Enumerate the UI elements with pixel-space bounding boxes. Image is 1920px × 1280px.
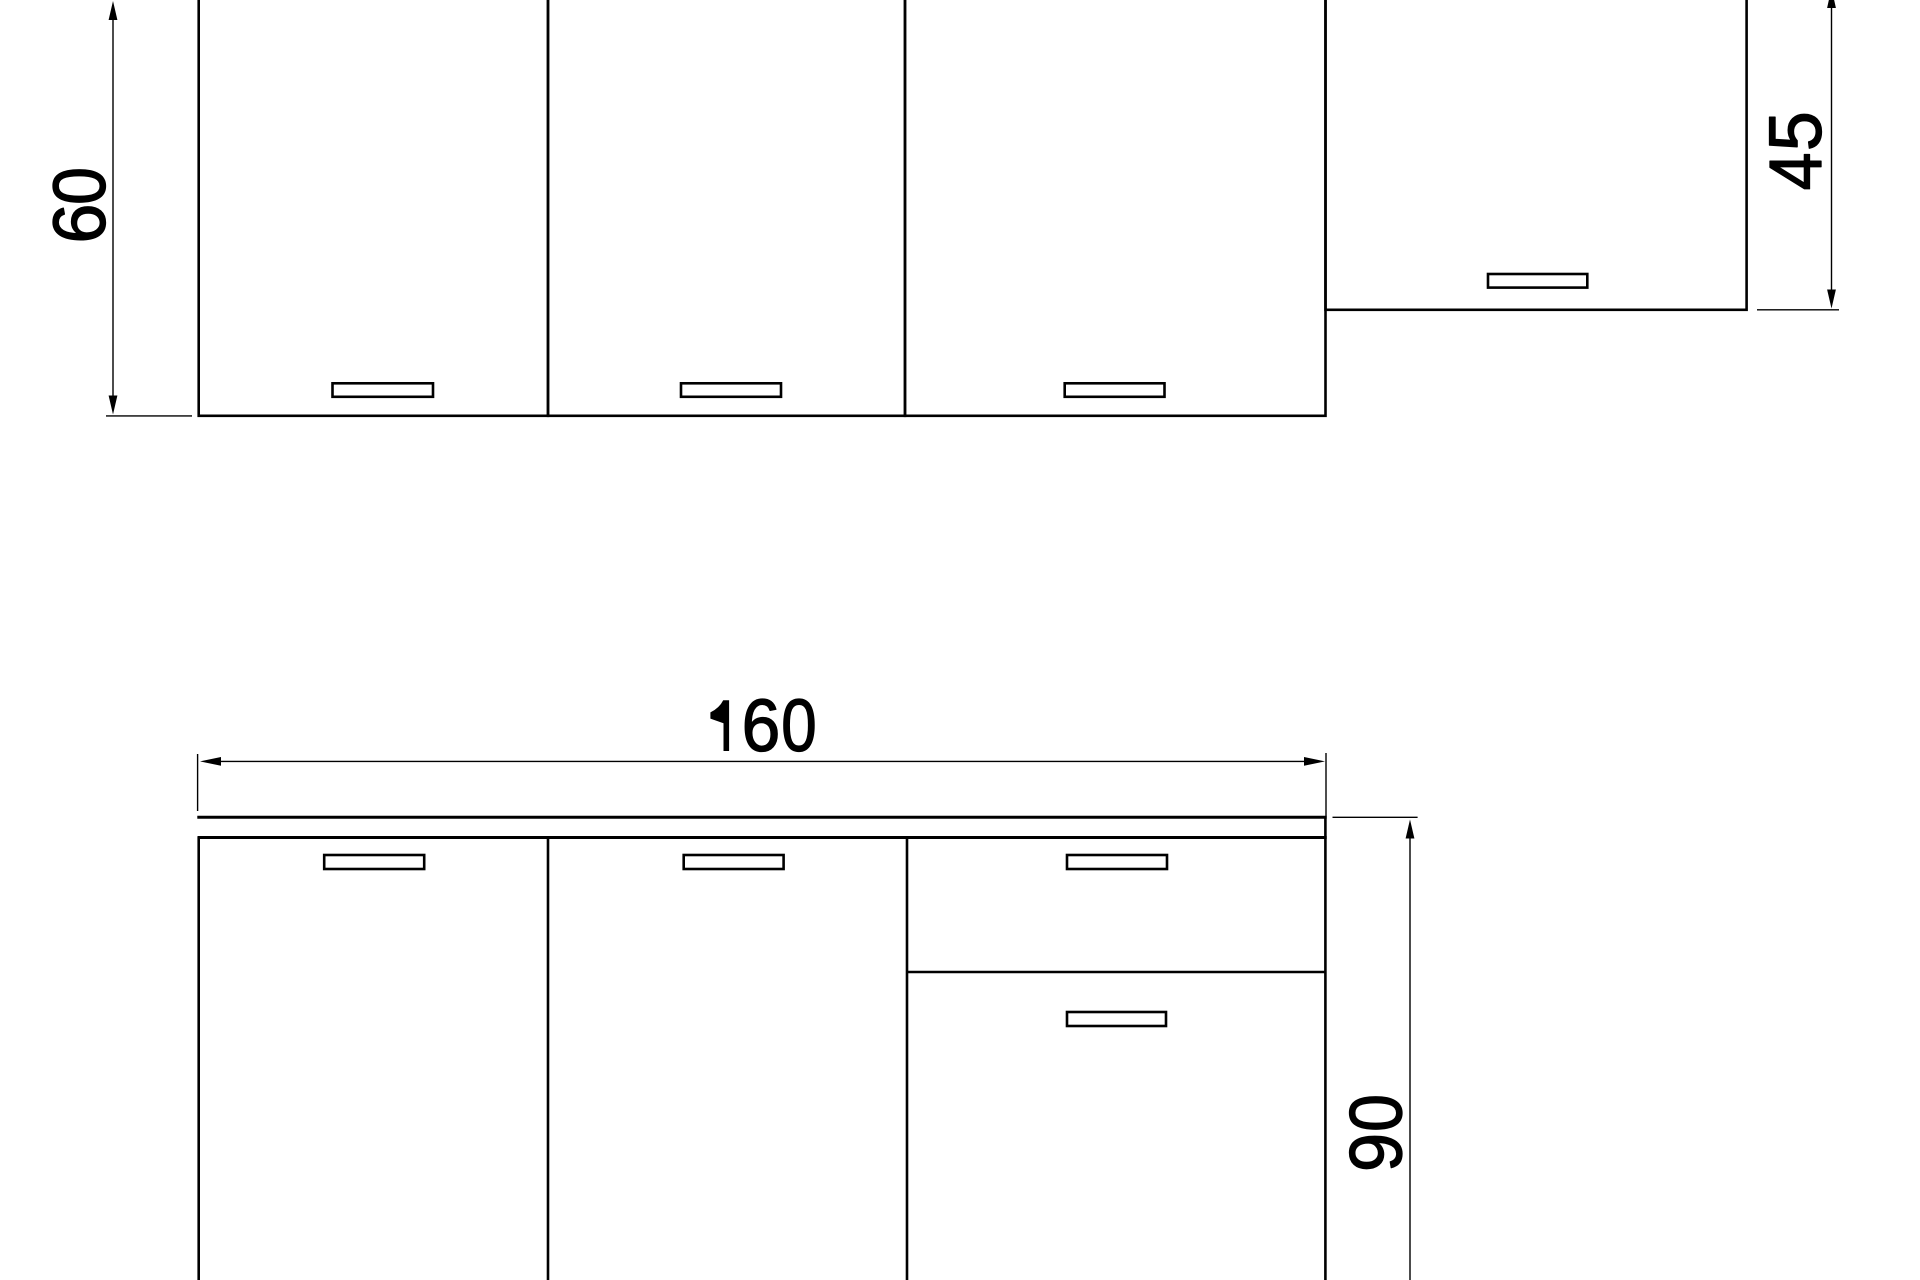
svg-text:4: 4 (1755, 152, 1837, 190)
svg-text:0: 0 (1336, 1094, 1418, 1132)
svg-text:9: 9 (1336, 1133, 1418, 1172)
svg-text:6: 6 (39, 204, 121, 244)
svg-text:0: 0 (39, 167, 121, 205)
svg-text:6: 6 (742, 685, 781, 767)
svg-text:0: 0 (781, 685, 816, 768)
svg-text:5: 5 (1755, 111, 1837, 151)
